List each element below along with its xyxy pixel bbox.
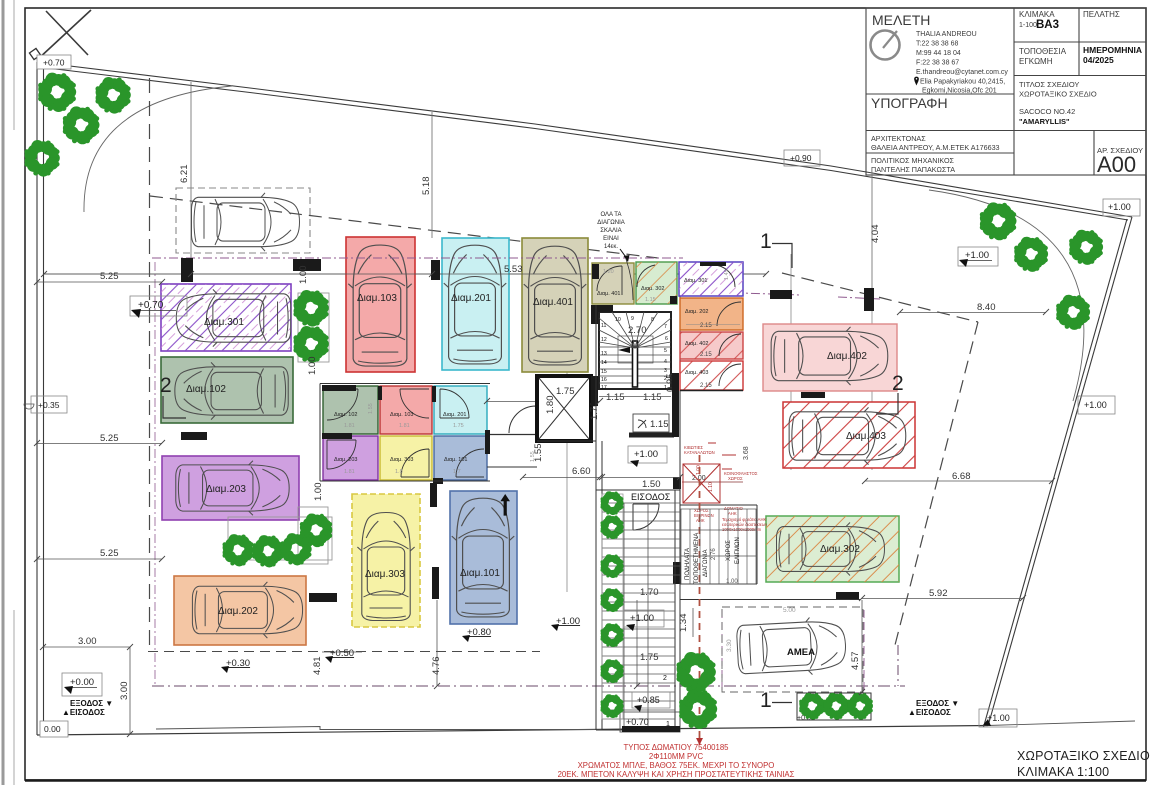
svg-text:ΑΡΧΙΤΕΚΤΟΝΑΣ: ΑΡΧΙΤΕΚΤΟΝΑΣ bbox=[871, 134, 926, 143]
svg-text:15: 15 bbox=[601, 369, 607, 375]
svg-text:Διαμ. 303: Διαμ. 303 bbox=[390, 457, 413, 463]
svg-text:2: 2 bbox=[892, 372, 904, 395]
svg-text:1.00: 1.00 bbox=[313, 483, 324, 502]
svg-text:ΔΙΑΓΩΝΙΑ: ΔΙΑΓΩΝΙΑ bbox=[597, 220, 624, 226]
svg-text:+0.85: +0.85 bbox=[637, 695, 660, 705]
svg-text:ΚΛΙΜΑΚΑ 1:100: ΚΛΙΜΑΚΑ 1:100 bbox=[1017, 765, 1109, 779]
svg-text:2.70: 2.70 bbox=[628, 325, 647, 336]
svg-text:8: 8 bbox=[651, 317, 654, 323]
svg-text:1.20: 1.20 bbox=[603, 269, 614, 275]
svg-text:Διαμ. 402: Διαμ. 402 bbox=[685, 341, 708, 347]
svg-text:Διαμ.302: Διαμ.302 bbox=[820, 544, 860, 555]
svg-text:ΧΩΡΟΤΑΞΙΚΟ ΣΧΕΔΙΟ: ΧΩΡΟΤΑΞΙΚΟ ΣΧΕΔΙΟ bbox=[1019, 90, 1097, 99]
svg-text:6.68: 6.68 bbox=[952, 471, 971, 482]
svg-text:2.76: 2.76 bbox=[711, 548, 717, 560]
svg-text:Διαμ. 202: Διαμ. 202 bbox=[685, 309, 708, 315]
svg-text:0.00: 0.00 bbox=[44, 724, 61, 734]
svg-text:1.00: 1.00 bbox=[726, 579, 738, 585]
svg-text:+0.35: +0.35 bbox=[38, 400, 60, 410]
svg-text:Elia Papakyriakou 40,2415,: Elia Papakyriakou 40,2415, bbox=[920, 79, 1005, 86]
svg-text:SACOCO NO.42: SACOCO NO.42 bbox=[1019, 107, 1075, 116]
svg-text:ΠΕΛΑΤΗΣ: ΠΕΛΑΤΗΣ bbox=[1083, 10, 1120, 19]
svg-text:1.45: 1.45 bbox=[724, 269, 730, 280]
svg-text:3.00: 3.00 bbox=[78, 636, 97, 647]
svg-text:ΥΠΟΓΡΑΦΗ: ΥΠΟΓΡΑΦΗ bbox=[871, 95, 948, 111]
svg-text:2Φ110ΜΜ PVC: 2Φ110ΜΜ PVC bbox=[649, 752, 704, 761]
svg-text:1.00: 1.00 bbox=[298, 266, 309, 285]
svg-text:Διαμ. 201: Διαμ. 201 bbox=[443, 412, 466, 418]
svg-text:04/2025: 04/2025 bbox=[1083, 55, 1114, 65]
svg-text:ΕΙΣΟΔΟΣ: ΕΙΣΟΔΟΣ bbox=[631, 492, 671, 502]
svg-text:17: 17 bbox=[601, 385, 607, 391]
svg-text:ΔΙΑΓΩΝΙΑ: ΔΙΑΓΩΝΙΑ bbox=[703, 550, 709, 577]
svg-text:Διαμ.402: Διαμ.402 bbox=[827, 351, 867, 362]
svg-text:1.81: 1.81 bbox=[399, 423, 410, 429]
svg-text:+1.00: +1.00 bbox=[1108, 202, 1131, 212]
svg-text:1.75: 1.75 bbox=[453, 423, 464, 429]
svg-text:Egkomi,Nicosia,Ofc 201: Egkomi,Nicosia,Ofc 201 bbox=[922, 88, 997, 95]
svg-text:F:22 38 38 67: F:22 38 38 67 bbox=[916, 60, 959, 67]
svg-text:1: 1 bbox=[760, 230, 772, 253]
svg-text:Διαμ.202: Διαμ.202 bbox=[218, 606, 258, 617]
svg-text:2.15: 2.15 bbox=[700, 352, 712, 358]
svg-text:5: 5 bbox=[664, 348, 667, 354]
svg-text:Διαμ.201: Διαμ.201 bbox=[451, 293, 491, 304]
svg-text:ΣΚΑΛΙΑ: ΣΚΑΛΙΑ bbox=[600, 228, 621, 234]
svg-text:ΚΑΤΑΝΑΛΩΤΩΝ: ΚΑΤΑΝΑΛΩΤΩΝ bbox=[684, 450, 715, 455]
svg-text:Διαμ. 103: Διαμ. 103 bbox=[390, 412, 413, 418]
svg-text:M:99 44 18 04: M:99 44 18 04 bbox=[916, 50, 961, 57]
svg-text:4.76: 4.76 bbox=[431, 657, 442, 676]
svg-text:6.21: 6.21 bbox=[179, 165, 190, 184]
svg-text:5.25: 5.25 bbox=[100, 548, 119, 559]
svg-text:+0.50: +0.50 bbox=[330, 648, 354, 659]
svg-text:2.15: 2.15 bbox=[700, 383, 712, 389]
svg-text:Διαμ.203: Διαμ.203 bbox=[206, 484, 246, 495]
svg-text:4.81: 4.81 bbox=[312, 657, 323, 676]
svg-text:ΤΟΠΟΘΕΣΙΑ: ΤΟΠΟΘΕΣΙΑ bbox=[1019, 47, 1067, 56]
svg-text:+0.00: +0.00 bbox=[70, 677, 94, 688]
svg-text:Διαμ.401: Διαμ.401 bbox=[533, 297, 573, 308]
svg-text:4.04: 4.04 bbox=[870, 225, 881, 244]
svg-text:1: 1 bbox=[760, 689, 772, 712]
svg-text:Διαμ. 102: Διαμ. 102 bbox=[334, 412, 357, 418]
svg-text:4: 4 bbox=[664, 359, 667, 365]
svg-text:5.25: 5.25 bbox=[100, 271, 119, 282]
svg-text:2: 2 bbox=[160, 374, 172, 397]
svg-text:Διαμ. 301: Διαμ. 301 bbox=[684, 278, 707, 284]
svg-text:+1.00: +1.00 bbox=[556, 616, 580, 627]
svg-text:ΕΞΟΔΟΣ ▼: ΕΞΟΔΟΣ ▼ bbox=[70, 699, 113, 708]
svg-text:1-100: 1-100 bbox=[1019, 22, 1037, 29]
svg-text:ΑΗΚ: ΑΗΚ bbox=[728, 511, 737, 516]
svg-text:2.15: 2.15 bbox=[700, 323, 712, 329]
svg-text:+1.00: +1.00 bbox=[1084, 400, 1107, 410]
svg-text:3: 3 bbox=[664, 368, 667, 374]
svg-text:4.57: 4.57 bbox=[850, 652, 861, 671]
svg-text:6.60: 6.60 bbox=[572, 466, 591, 477]
svg-text:ΧΩΡΟΣ: ΧΩΡΟΣ bbox=[728, 476, 743, 481]
svg-text:ΧΩΡΟΤΑΞΙΚΟ ΣΧΕΔΙΟ: ΧΩΡΟΤΑΞΙΚΟ ΣΧΕΔΙΟ bbox=[1017, 749, 1150, 763]
svg-text:7: 7 bbox=[664, 324, 667, 330]
svg-text:3.00: 3.00 bbox=[119, 682, 130, 701]
svg-text:ΕΙΝΑΙ: ΕΙΝΑΙ bbox=[603, 236, 619, 242]
svg-text:"AMARYLLIS": "AMARYLLIS" bbox=[1019, 117, 1070, 126]
svg-text:+0.90: +0.90 bbox=[790, 153, 812, 163]
svg-text:5.00: 5.00 bbox=[783, 607, 796, 614]
svg-text:ΑΗΚ: ΑΗΚ bbox=[696, 518, 705, 523]
svg-text:16: 16 bbox=[601, 377, 607, 383]
svg-text:ΕΛΙΓΜΩΝ: ΕΛΙΓΜΩΝ bbox=[735, 537, 741, 564]
svg-text:10: 10 bbox=[615, 317, 621, 323]
svg-text:1.7: 1.7 bbox=[453, 469, 461, 475]
svg-text:T:22 38 38 68: T:22 38 38 68 bbox=[916, 41, 959, 48]
svg-text:13: 13 bbox=[601, 351, 607, 357]
svg-text:Διαμ.102: Διαμ.102 bbox=[186, 384, 226, 395]
svg-text:5.53: 5.53 bbox=[504, 264, 523, 275]
svg-text:ΜΕΛΕΤΗ: ΜΕΛΕΤΗ bbox=[872, 12, 930, 28]
svg-text:11: 11 bbox=[601, 323, 606, 329]
svg-text:ΒΑ3: ΒΑ3 bbox=[1036, 19, 1059, 31]
svg-text:5.92: 5.92 bbox=[929, 588, 948, 599]
svg-text:1.15: 1.15 bbox=[643, 392, 662, 403]
svg-text:1.70: 1.70 bbox=[640, 587, 659, 598]
svg-text:5.25: 5.25 bbox=[100, 433, 119, 444]
svg-text:14: 14 bbox=[601, 360, 607, 366]
svg-text:ΠΑΝΤΕΛΗΣ ΠΑΠΑΚΩΣΤΑ: ΠΑΝΤΕΛΗΣ ΠΑΠΑΚΩΣΤΑ bbox=[871, 165, 955, 174]
svg-text:ΗΜΕΡΟΜΗΝΙΑ: ΗΜΕΡΟΜΗΝΙΑ bbox=[1083, 45, 1142, 55]
svg-text:1.75: 1.75 bbox=[556, 386, 575, 397]
svg-text:6: 6 bbox=[665, 336, 668, 342]
svg-text:+1.00: +1.00 bbox=[634, 449, 658, 460]
svg-text:Διαμ.101: Διαμ.101 bbox=[460, 568, 500, 579]
svg-text:3.68: 3.68 bbox=[743, 446, 750, 460]
svg-text:E.thandreou@cytanet.com.cy: E.thandreou@cytanet.com.cy bbox=[916, 69, 1008, 76]
svg-text:▲ΕΙΣΟΔΟΣ: ▲ΕΙΣΟΔΟΣ bbox=[62, 708, 105, 717]
svg-text:3.30: 3.30 bbox=[726, 639, 733, 652]
svg-text:1.50: 1.50 bbox=[642, 479, 661, 490]
svg-text:ΟΛΑ ΤΑ: ΟΛΑ ΤΑ bbox=[600, 212, 621, 218]
svg-text:ΤΥΠΟΣ ΔΩΜΑΤΙΟΥ 75400185: ΤΥΠΟΣ ΔΩΜΑΤΙΟΥ 75400185 bbox=[623, 743, 729, 752]
svg-text:1.15: 1.15 bbox=[650, 419, 669, 430]
svg-text:ΤΟΠΟΘΕΤΗΜΕΝΑ: ΤΟΠΟΘΕΤΗΜΕΝΑ bbox=[694, 533, 700, 584]
svg-text:+0.70: +0.70 bbox=[43, 58, 65, 68]
svg-text:1.15: 1.15 bbox=[606, 392, 625, 403]
svg-text:Διαμ. 401: Διαμ. 401 bbox=[597, 291, 620, 297]
svg-text:Διαμ.303: Διαμ.303 bbox=[365, 569, 405, 580]
svg-text:Διαμ.103: Διαμ.103 bbox=[357, 293, 397, 304]
svg-text:1.55: 1.55 bbox=[533, 444, 544, 463]
svg-text:Διαμ.403: Διαμ.403 bbox=[846, 431, 886, 442]
svg-text:ΑΜΕΑ: ΑΜΕΑ bbox=[787, 647, 815, 658]
svg-text:20ΕΚ. ΜΠΕΤΟΝ ΚΑΛΥΨΗ ΚΑΙ ΧΡΗΣΗ: 20ΕΚ. ΜΠΕΤΟΝ ΚΑΛΥΨΗ ΚΑΙ ΧΡΗΣΗ ΠΡΟΣΤΑΤΕΥΤ… bbox=[558, 770, 795, 779]
svg-text:14εκ.: 14εκ. bbox=[604, 244, 618, 250]
svg-text:ΧΡΩΜΑΤΟΣ ΜΠΛΕ, ΒΑΘΟΣ 75ΕΚ. ΜΕΧ: ΧΡΩΜΑΤΟΣ ΜΠΛΕ, ΒΑΘΟΣ 75ΕΚ. ΜΕΧΡΙ ΤΟ ΣΥΝΟ… bbox=[578, 761, 775, 770]
svg-text:+0.70: +0.70 bbox=[138, 300, 164, 311]
svg-text:Διαμ. 302: Διαμ. 302 bbox=[641, 286, 664, 292]
svg-text:A00: A00 bbox=[1097, 152, 1136, 177]
svg-text:+1.00: +1.00 bbox=[965, 250, 989, 261]
svg-text:Διαμ. 203: Διαμ. 203 bbox=[334, 457, 357, 463]
svg-text:ΘΑΛΕΙΑ ΑΝΤΡΕΟΥ, Α.Μ.ΕΤΕΚ Α1766: ΘΑΛΕΙΑ ΑΝΤΡΕΟΥ, Α.Μ.ΕΤΕΚ Α176633 bbox=[871, 143, 1000, 152]
svg-text:1.8: 1.8 bbox=[395, 469, 403, 475]
svg-text:ΧΩΡΟΣ: ΧΩΡΟΣ bbox=[726, 540, 732, 561]
svg-text:12: 12 bbox=[601, 337, 607, 343]
svg-text:THALIA ANDREOU: THALIA ANDREOU bbox=[916, 31, 977, 38]
svg-text:1.00: 1.00 bbox=[307, 357, 318, 376]
svg-text:1.81: 1.81 bbox=[344, 423, 355, 429]
svg-text:2: 2 bbox=[663, 675, 667, 682]
svg-text:ΠΟΛΙΤΙΚΟΣ ΜΗΧΑΝΙΚΟΣ: ΠΟΛΙΤΙΚΟΣ ΜΗΧΑΝΙΚΟΣ bbox=[871, 156, 955, 165]
svg-text:ΠΟΔΗΛΑΤΑ: ΠΟΔΗΛΑΤΑ bbox=[685, 548, 691, 580]
svg-text:1.34: 1.34 bbox=[678, 614, 689, 633]
svg-text:9: 9 bbox=[631, 316, 634, 322]
svg-text:8.40: 8.40 bbox=[977, 302, 996, 313]
svg-text:1.10: 1.10 bbox=[708, 482, 714, 492]
svg-text:+1.00: +1.00 bbox=[630, 613, 654, 624]
svg-text:1.15: 1.15 bbox=[645, 297, 656, 303]
svg-text:▲ΕΙΣΟΔΟΣ: ▲ΕΙΣΟΔΟΣ bbox=[908, 708, 951, 717]
svg-text:+0.70: +0.70 bbox=[626, 717, 649, 727]
svg-text:1.80: 1.80 bbox=[545, 396, 556, 415]
svg-text:1.75: 1.75 bbox=[640, 652, 659, 663]
svg-text:+0.80: +0.80 bbox=[467, 627, 491, 638]
svg-text:ΕΓΚΩΜΗ: ΕΓΚΩΜΗ bbox=[1019, 57, 1053, 66]
svg-text:Διαμ.301: Διαμ.301 bbox=[204, 317, 244, 328]
svg-text:ΤΙΤΛΟΣ ΣΧΕΔΙΟΥ: ΤΙΤΛΟΣ ΣΧΕΔΙΟΥ bbox=[1019, 80, 1079, 89]
svg-text:5.18: 5.18 bbox=[421, 177, 432, 196]
svg-text:+1.00: +1.00 bbox=[987, 713, 1010, 723]
svg-text:Διαμ. 403: Διαμ. 403 bbox=[685, 370, 708, 376]
svg-text:1.81: 1.81 bbox=[344, 469, 355, 475]
svg-text:Διαμ. 101: Διαμ. 101 bbox=[444, 457, 467, 463]
svg-text:+0.30: +0.30 bbox=[226, 658, 250, 669]
svg-text:ΚΛΙΜΑΚΑ: ΚΛΙΜΑΚΑ bbox=[1019, 10, 1055, 19]
svg-text:ΕΞΟΔΟΣ ▼: ΕΞΟΔΟΣ ▼ bbox=[916, 699, 959, 708]
svg-text:1.55: 1.55 bbox=[368, 403, 374, 414]
